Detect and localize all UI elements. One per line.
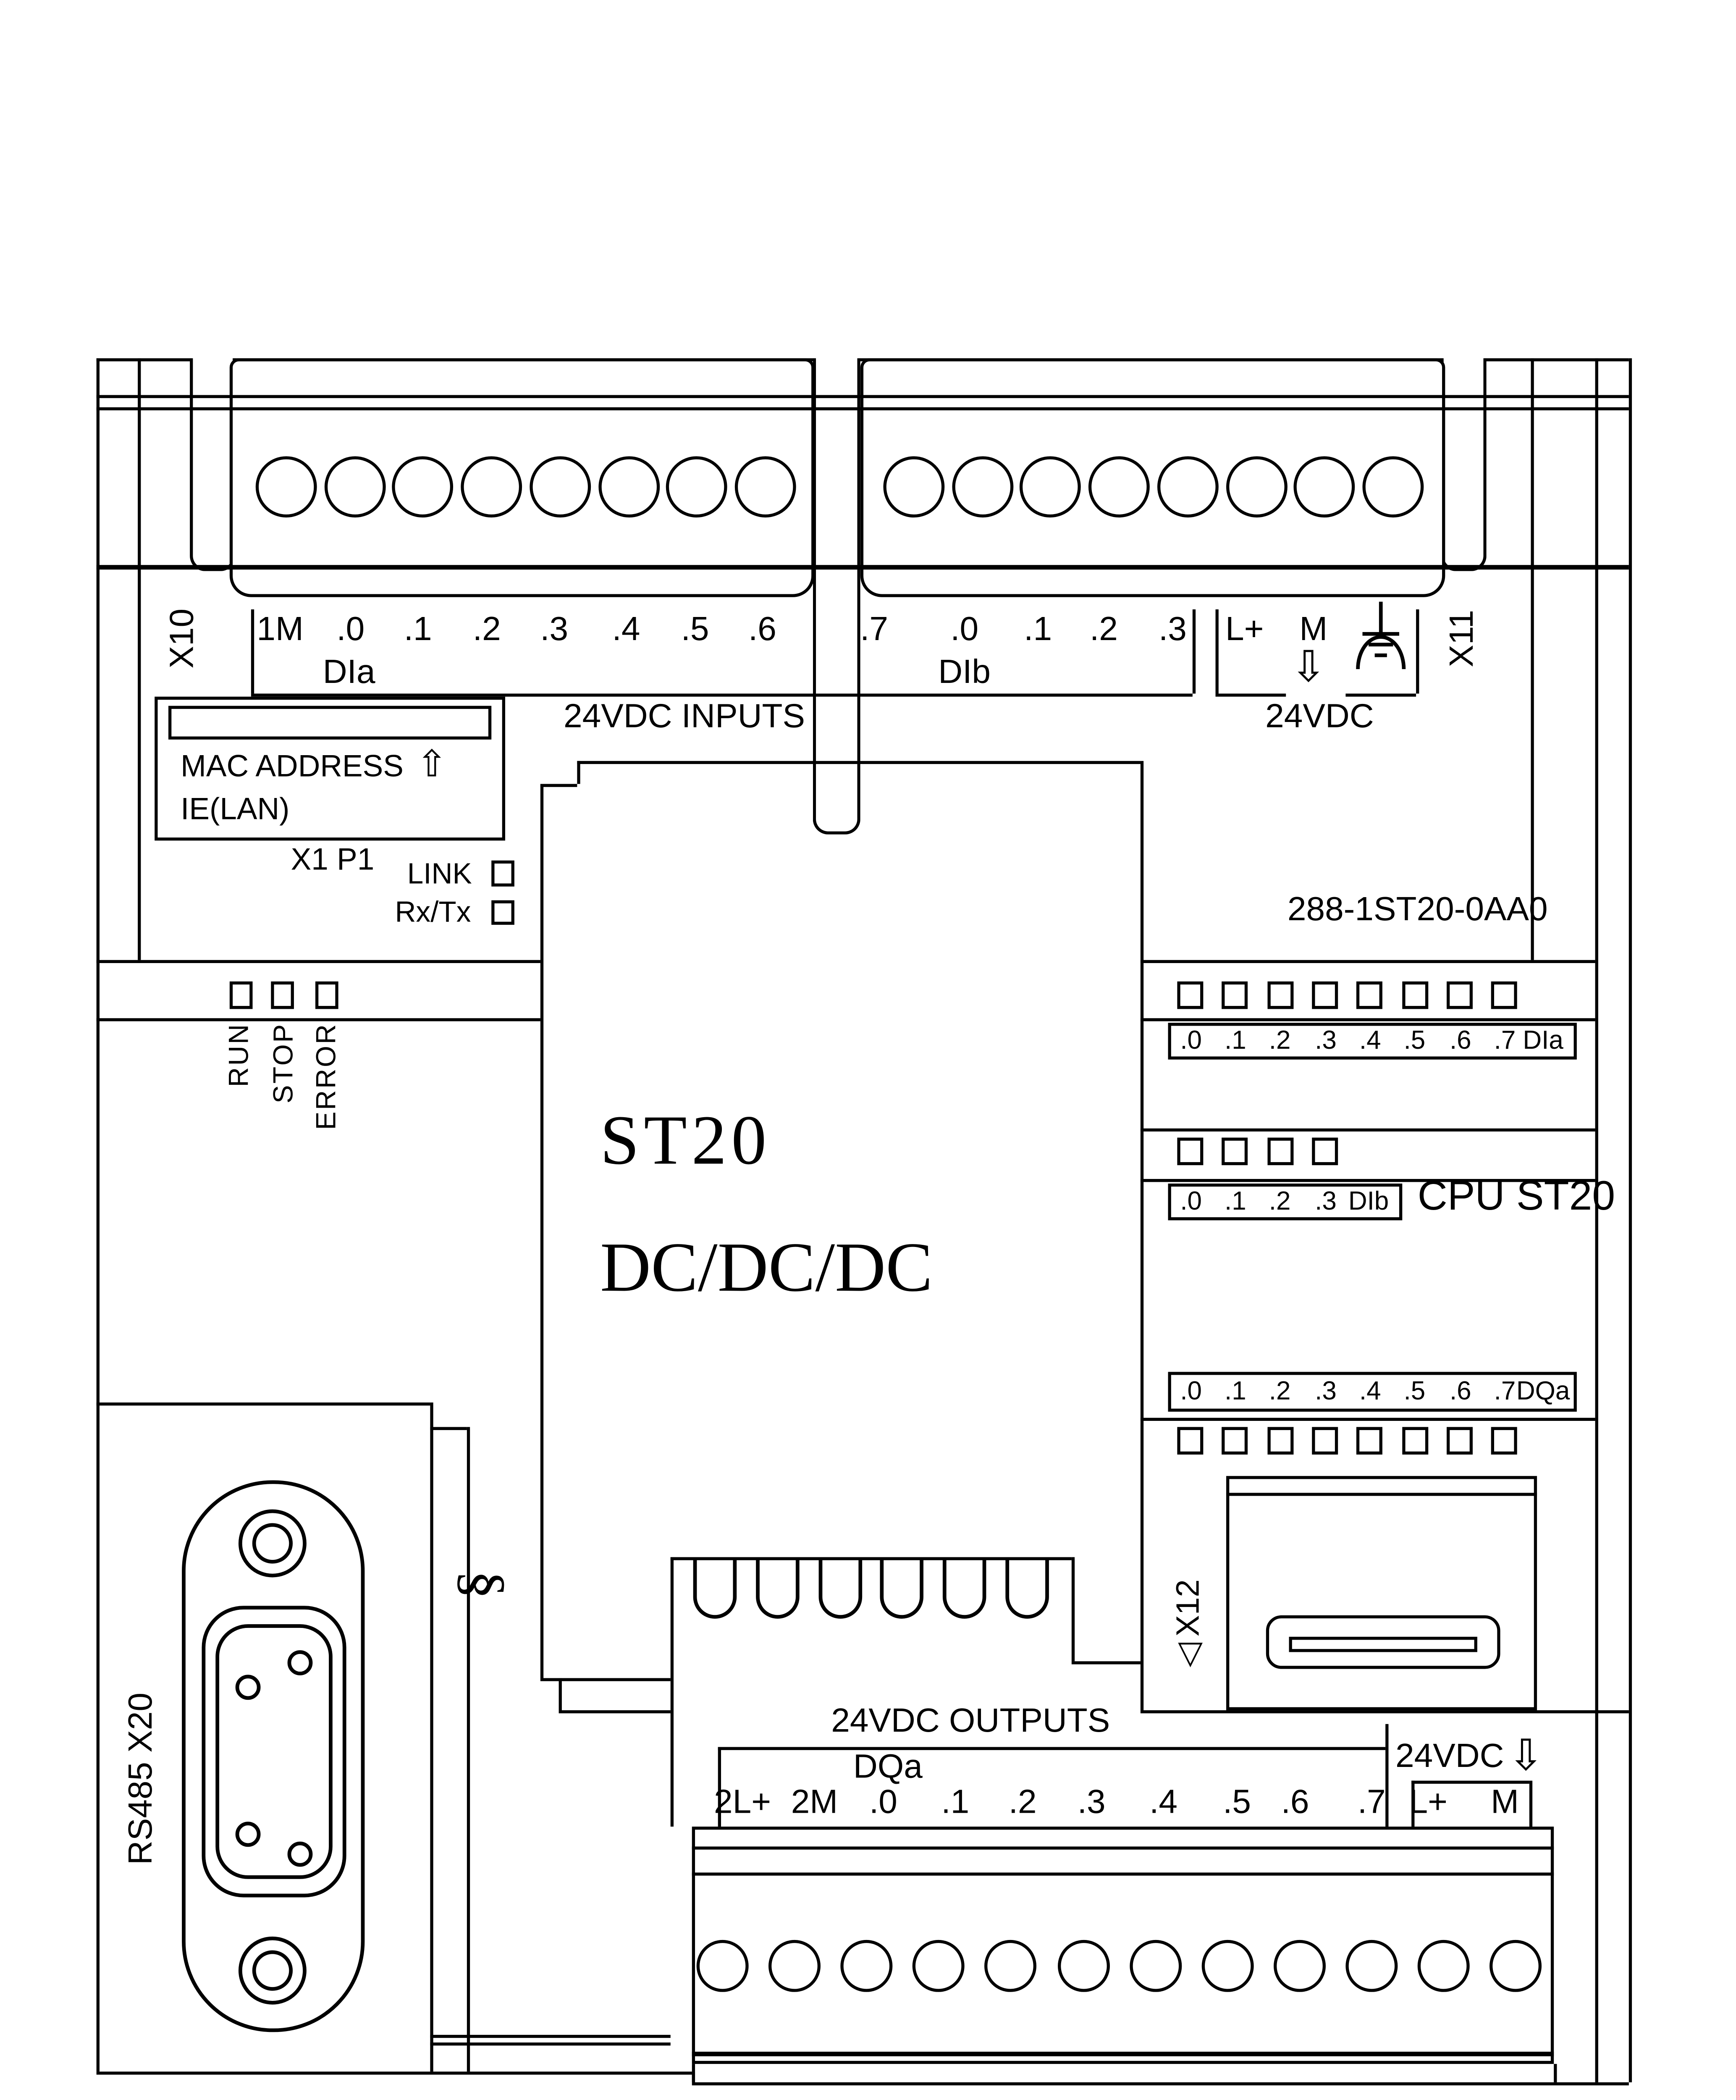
screw-terminal [1418,1940,1470,1992]
line [718,1747,1385,1750]
power-type-text: DC/DC/DC [600,1233,933,1303]
diagram-canvas: X10 X11 1M .0 .1 .2 .3 .4 .5 .6 .7 .0 .1… [0,0,1736,2100]
line [1141,1129,1595,1131]
line [1141,960,1595,963]
screw-terminal [1226,456,1288,517]
dia-led [1447,982,1473,1009]
line [430,2035,670,2038]
screw-terminal [392,456,453,517]
terminal-label: .0 [336,612,365,646]
terminal-label: .6 [748,612,776,646]
terminal-label: 1M [257,612,303,646]
run-led [230,982,253,1009]
terminal-label: .0 [869,1785,897,1819]
line [97,1402,430,1405]
line [1216,693,1286,696]
bit-label: .0 [1180,1027,1202,1053]
screw-terminal [666,456,727,517]
screw-terminal [913,1940,965,1992]
dia-led [1491,982,1517,1009]
line [692,2064,695,2082]
terminal-label: .3 [1159,612,1187,646]
screw-terminal [1345,1940,1398,1992]
center-panel-left [540,784,543,1678]
terminal-label: .5 [681,612,709,646]
dib-led [1267,1138,1293,1165]
terminal-label: .6 [1281,1785,1309,1819]
input-group-label: DIb [938,655,991,689]
line [430,1402,433,2071]
line [577,761,580,784]
line [1216,609,1219,694]
bit-label: .1 [1225,1378,1246,1404]
center-panel-right [1141,761,1143,1710]
terminal-label: 2M [791,1785,838,1819]
screw-terminal [1020,456,1081,517]
screw-terminal [325,456,386,517]
line [1226,1493,1537,1496]
terminal-label: .7 [860,612,888,646]
bit-label: .2 [1269,1188,1291,1214]
rxtx-led-label: Rx/Tx [395,899,471,928]
bit-label: .5 [1404,1378,1426,1404]
plc-wiring-diagram: X10 X11 1M .0 .1 .2 .3 .4 .5 .6 .7 .0 .1… [0,0,1736,2100]
screw-terminal [1362,456,1424,517]
center-panel-top [577,761,1141,764]
bit-label: .0 [1180,1188,1202,1214]
dqa-led [1491,1427,1517,1455]
module-bottom-edge-left [97,2071,692,2074]
dib-led [1312,1138,1338,1165]
dqa-led [1177,1427,1203,1455]
line [1193,609,1196,694]
screw-terminal [1088,456,1150,517]
link-led-label: LINK [407,861,472,890]
link-led [491,861,514,887]
line [1141,1018,1595,1021]
dqa-led [1402,1427,1428,1455]
line [1072,1557,1075,1661]
terminal-label: .1 [404,612,432,646]
dia-led [1312,982,1338,1009]
outputs-heading: 24VDC OUTPUTS [831,1704,1110,1738]
connector-label-x11: X11 [1444,539,1480,738]
line [1072,1661,1141,1664]
line [430,1427,467,1430]
line [251,609,254,694]
dib-led [1177,1138,1203,1165]
terminal-label: .4 [1149,1785,1177,1819]
module-right-edge [1629,358,1632,2082]
screw-terminal [840,1940,892,1992]
terminal-label: .2 [1090,612,1118,646]
terminal-label: .2 [1009,1785,1037,1819]
din-clip-icon: § [454,1570,512,1599]
bit-label: .1 [1225,1188,1246,1214]
x12-label: X12 [1171,1579,1206,1636]
screw-terminal [1274,1940,1326,1992]
dia-led [1267,982,1293,1009]
screw-terminal [1489,1940,1542,1992]
model-text: ST20 [600,1105,771,1176]
screw-terminal [1293,456,1355,517]
dqa-led [1356,1427,1382,1455]
expansion-bus-connector [671,1557,1072,1633]
mac-address-field [168,706,491,740]
stop-led [271,982,294,1009]
bit-label: .3 [1315,1378,1337,1404]
bit-label: .3 [1315,1027,1337,1053]
earth-ground-icon [1353,602,1408,675]
line [97,395,1629,398]
module-left-inner-line [138,358,141,960]
screw-terminal [1202,1940,1254,1992]
bit-label: .2 [1269,1027,1291,1053]
dia-led [1222,982,1248,1009]
screw-terminal [598,456,660,517]
power-out-label: 24VDC [1395,1739,1504,1773]
expansion-slot-label: ◁X12 [1170,1545,1206,1667]
screw-terminal [735,456,796,517]
bit-label: .2 [1269,1378,1291,1404]
screw-terminal [984,1940,1036,1992]
terminal-label: .0 [950,612,978,646]
power-terminal-label: L+ [1225,612,1264,646]
terminal-label: .7 [1358,1785,1386,1819]
dia-led [1177,982,1203,1009]
rxtx-led [491,900,514,925]
terminal-label: .2 [473,612,501,646]
power-terminal-label: L+ [1409,1785,1448,1819]
error-led-label: ERROR [309,1023,343,1163]
module-bottom-edge-right [692,2082,1629,2085]
terminal-label: .3 [540,612,568,646]
group-label: DQa [1516,1378,1570,1404]
line [1385,1724,1388,1827]
outputs-group-label: DQa [853,1750,923,1784]
line [467,1427,470,2072]
screw-terminal [530,456,591,517]
line [430,2042,670,2045]
line [1141,1418,1595,1421]
module-left-edge [97,358,100,2071]
dqa-led [1447,1427,1473,1455]
rs485-dsub-connector [171,1473,376,2042]
memory-card-door [1226,1476,1537,1710]
terminal-label: 2L+ [714,1785,771,1819]
screw-terminal [256,456,317,517]
dib-led [1222,1138,1248,1165]
line [251,693,1193,696]
screw-terminal [461,456,522,517]
bit-label: .7 [1494,1027,1516,1053]
line [1531,358,1534,960]
bit-label: .4 [1359,1027,1381,1053]
bit-label: .6 [1450,1378,1471,1404]
ethernet-port-label: X1 P1 [291,845,375,876]
cpu-label: CPU ST20 [1418,1176,1615,1217]
line [540,784,577,787]
order-number: 288-1ST20-0AA0 [1288,892,1548,926]
line [559,1710,671,1713]
bit-label: .5 [1404,1027,1426,1053]
group-label: DIa [1523,1027,1563,1053]
terminal-label: .5 [1223,1785,1251,1819]
input-group-label: DIa [323,655,375,689]
line [97,565,1629,570]
stop-led-label: STOP [266,1023,300,1163]
power-terminal-label: M [1491,1785,1519,1819]
input-terminal-block-left [230,358,815,597]
memory-card-slot-inner [1289,1637,1477,1652]
line [1554,2064,1557,2082]
line [97,1018,540,1021]
line [97,407,1629,410]
down-arrow-icon: ⇩ [1290,646,1327,689]
dia-led [1356,982,1382,1009]
terminal-label: .3 [1078,1785,1106,1819]
bit-label: .4 [1359,1378,1381,1404]
screw-terminal [952,456,1014,517]
screw-terminal [768,1940,821,1992]
terminal-label: .1 [941,1785,969,1819]
line [1141,1710,1629,1713]
line [1529,1781,1532,1827]
screw-terminal [1130,1940,1182,1992]
line [692,2052,1554,2056]
line [1345,693,1416,696]
screw-terminal [1157,456,1219,517]
line [692,1872,1554,1875]
bit-label: .3 [1315,1188,1337,1214]
down-arrow-icon: ⇩ [1508,1735,1544,1777]
left-triangle-icon: ◁ [1170,1643,1206,1667]
group-label: DIb [1348,1188,1389,1214]
line [692,1846,1554,1849]
bit-label: .0 [1180,1378,1202,1404]
output-terminal-block [692,1827,1554,2064]
serial-port-label: RS485 X20 [123,1666,159,1865]
dqa-led [1267,1427,1293,1455]
screw-terminal [883,456,944,517]
run-led-label: RUN [222,1023,256,1163]
bit-label: .7 [1494,1378,1516,1404]
dia-led [1402,982,1428,1009]
bit-label: .6 [1450,1027,1471,1053]
dqa-led [1222,1427,1248,1455]
inputs-heading: 24VDC INPUTS [564,700,805,733]
screw-terminal [1058,1940,1110,1992]
up-arrow-icon: ⇧ [417,745,447,782]
line [1416,609,1419,694]
bit-label: .1 [1225,1027,1246,1053]
error-led [315,982,338,1009]
screw-terminal [697,1940,749,1992]
module-right-inner-line [1595,358,1598,2082]
power-in-label: 24VDC [1265,700,1374,733]
lan-label: IE(LAN) [181,795,289,825]
dqa-led [1312,1427,1338,1455]
mac-address-label: MAC ADDRESS [181,752,404,782]
line [97,960,540,963]
line [559,1678,562,1710]
power-terminal-label: M [1299,612,1327,646]
terminal-label: .1 [1024,612,1052,646]
input-terminal-block-right [860,358,1445,597]
terminal-label: .4 [612,612,640,646]
